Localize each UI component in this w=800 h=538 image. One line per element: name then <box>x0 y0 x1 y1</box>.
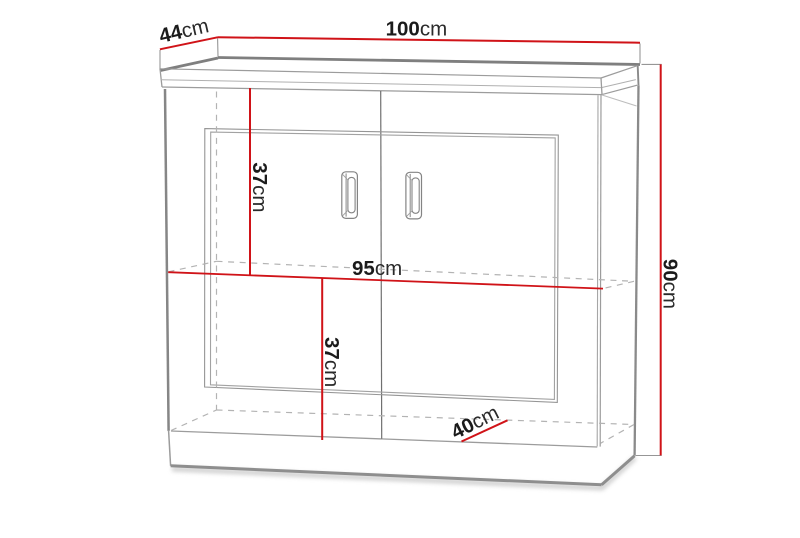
svg-text:95cm: 95cm <box>352 257 402 280</box>
svg-text:100cm: 100cm <box>386 17 448 40</box>
svg-text:37cm: 37cm <box>248 162 271 212</box>
svg-text:90cm: 90cm <box>659 259 682 309</box>
svg-text:37cm: 37cm <box>320 337 343 387</box>
